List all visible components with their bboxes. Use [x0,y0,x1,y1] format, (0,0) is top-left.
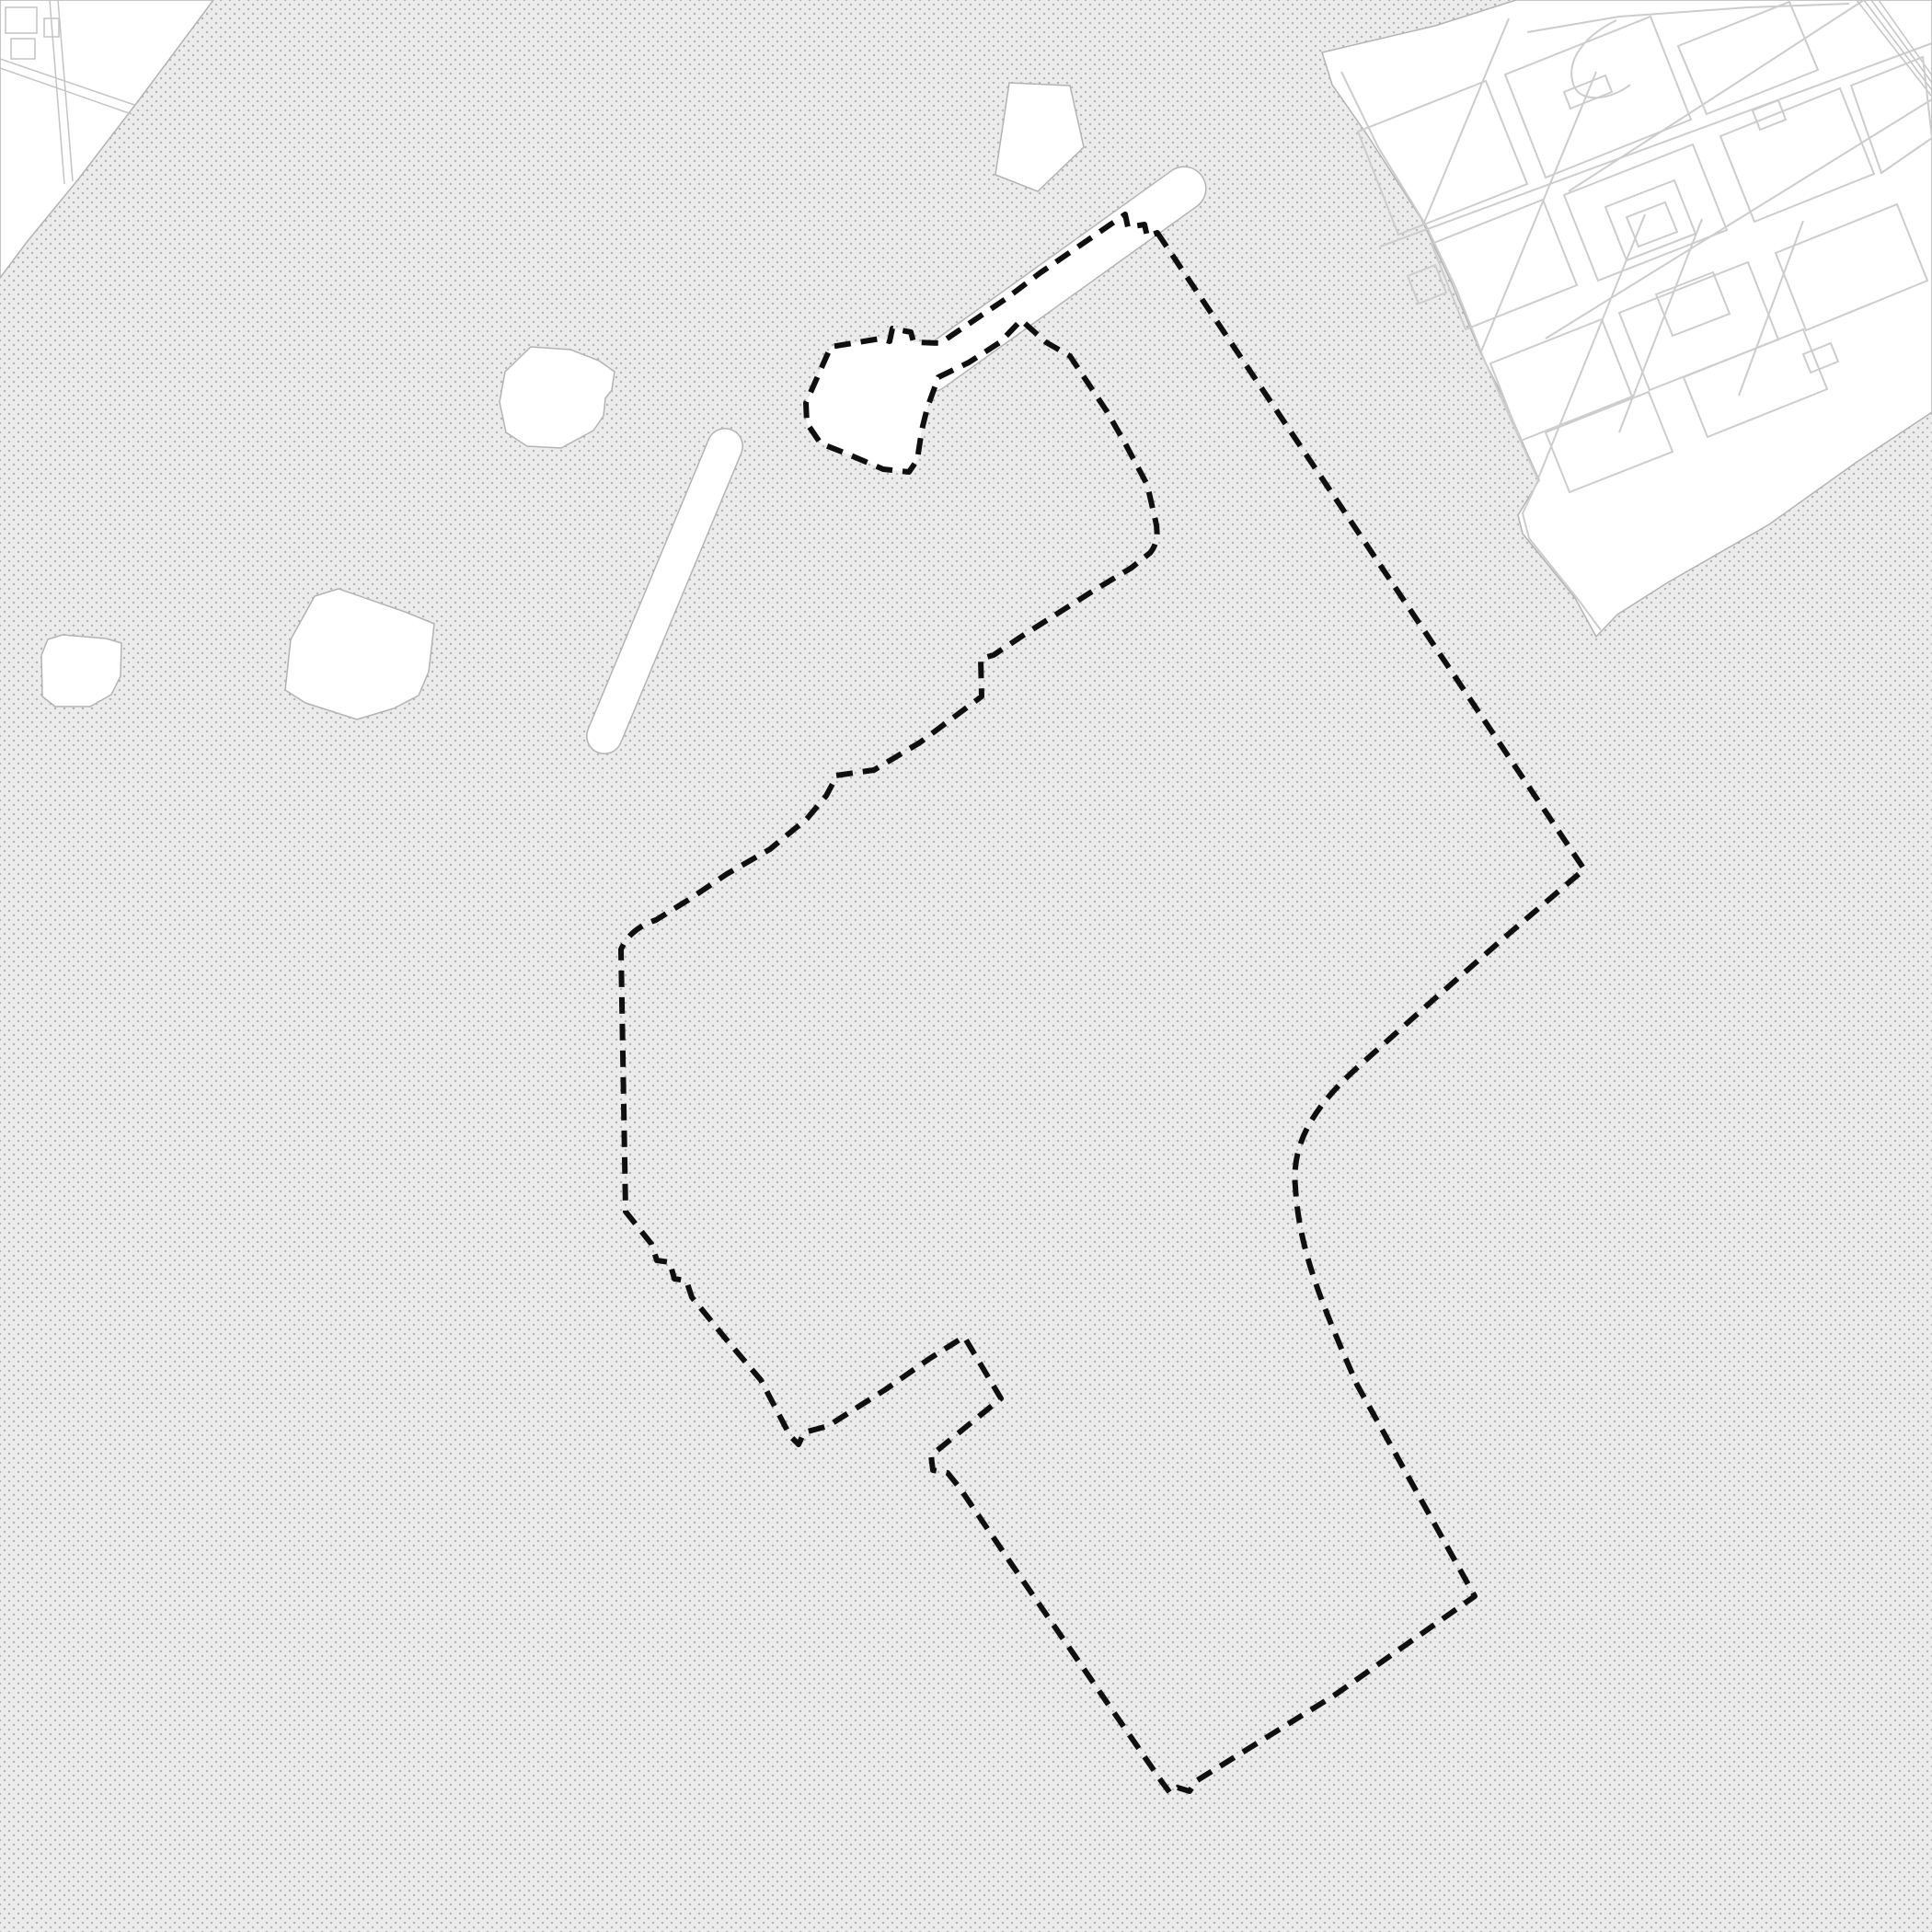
island-small-round [500,347,615,448]
breakwater-pier-north [931,189,1184,370]
site-boundary-dashed [621,214,1584,1793]
island-west-small [41,635,121,707]
urban-district-landmass [1322,0,1932,637]
site-plan-map [0,0,1932,1932]
urban-building [1408,265,1446,304]
island-large [285,589,434,719]
top-left-landmass [0,0,213,278]
breakwater-pier-south [604,446,725,736]
island-pentagon [995,83,1084,191]
site-plan-canvas [0,0,1932,1932]
